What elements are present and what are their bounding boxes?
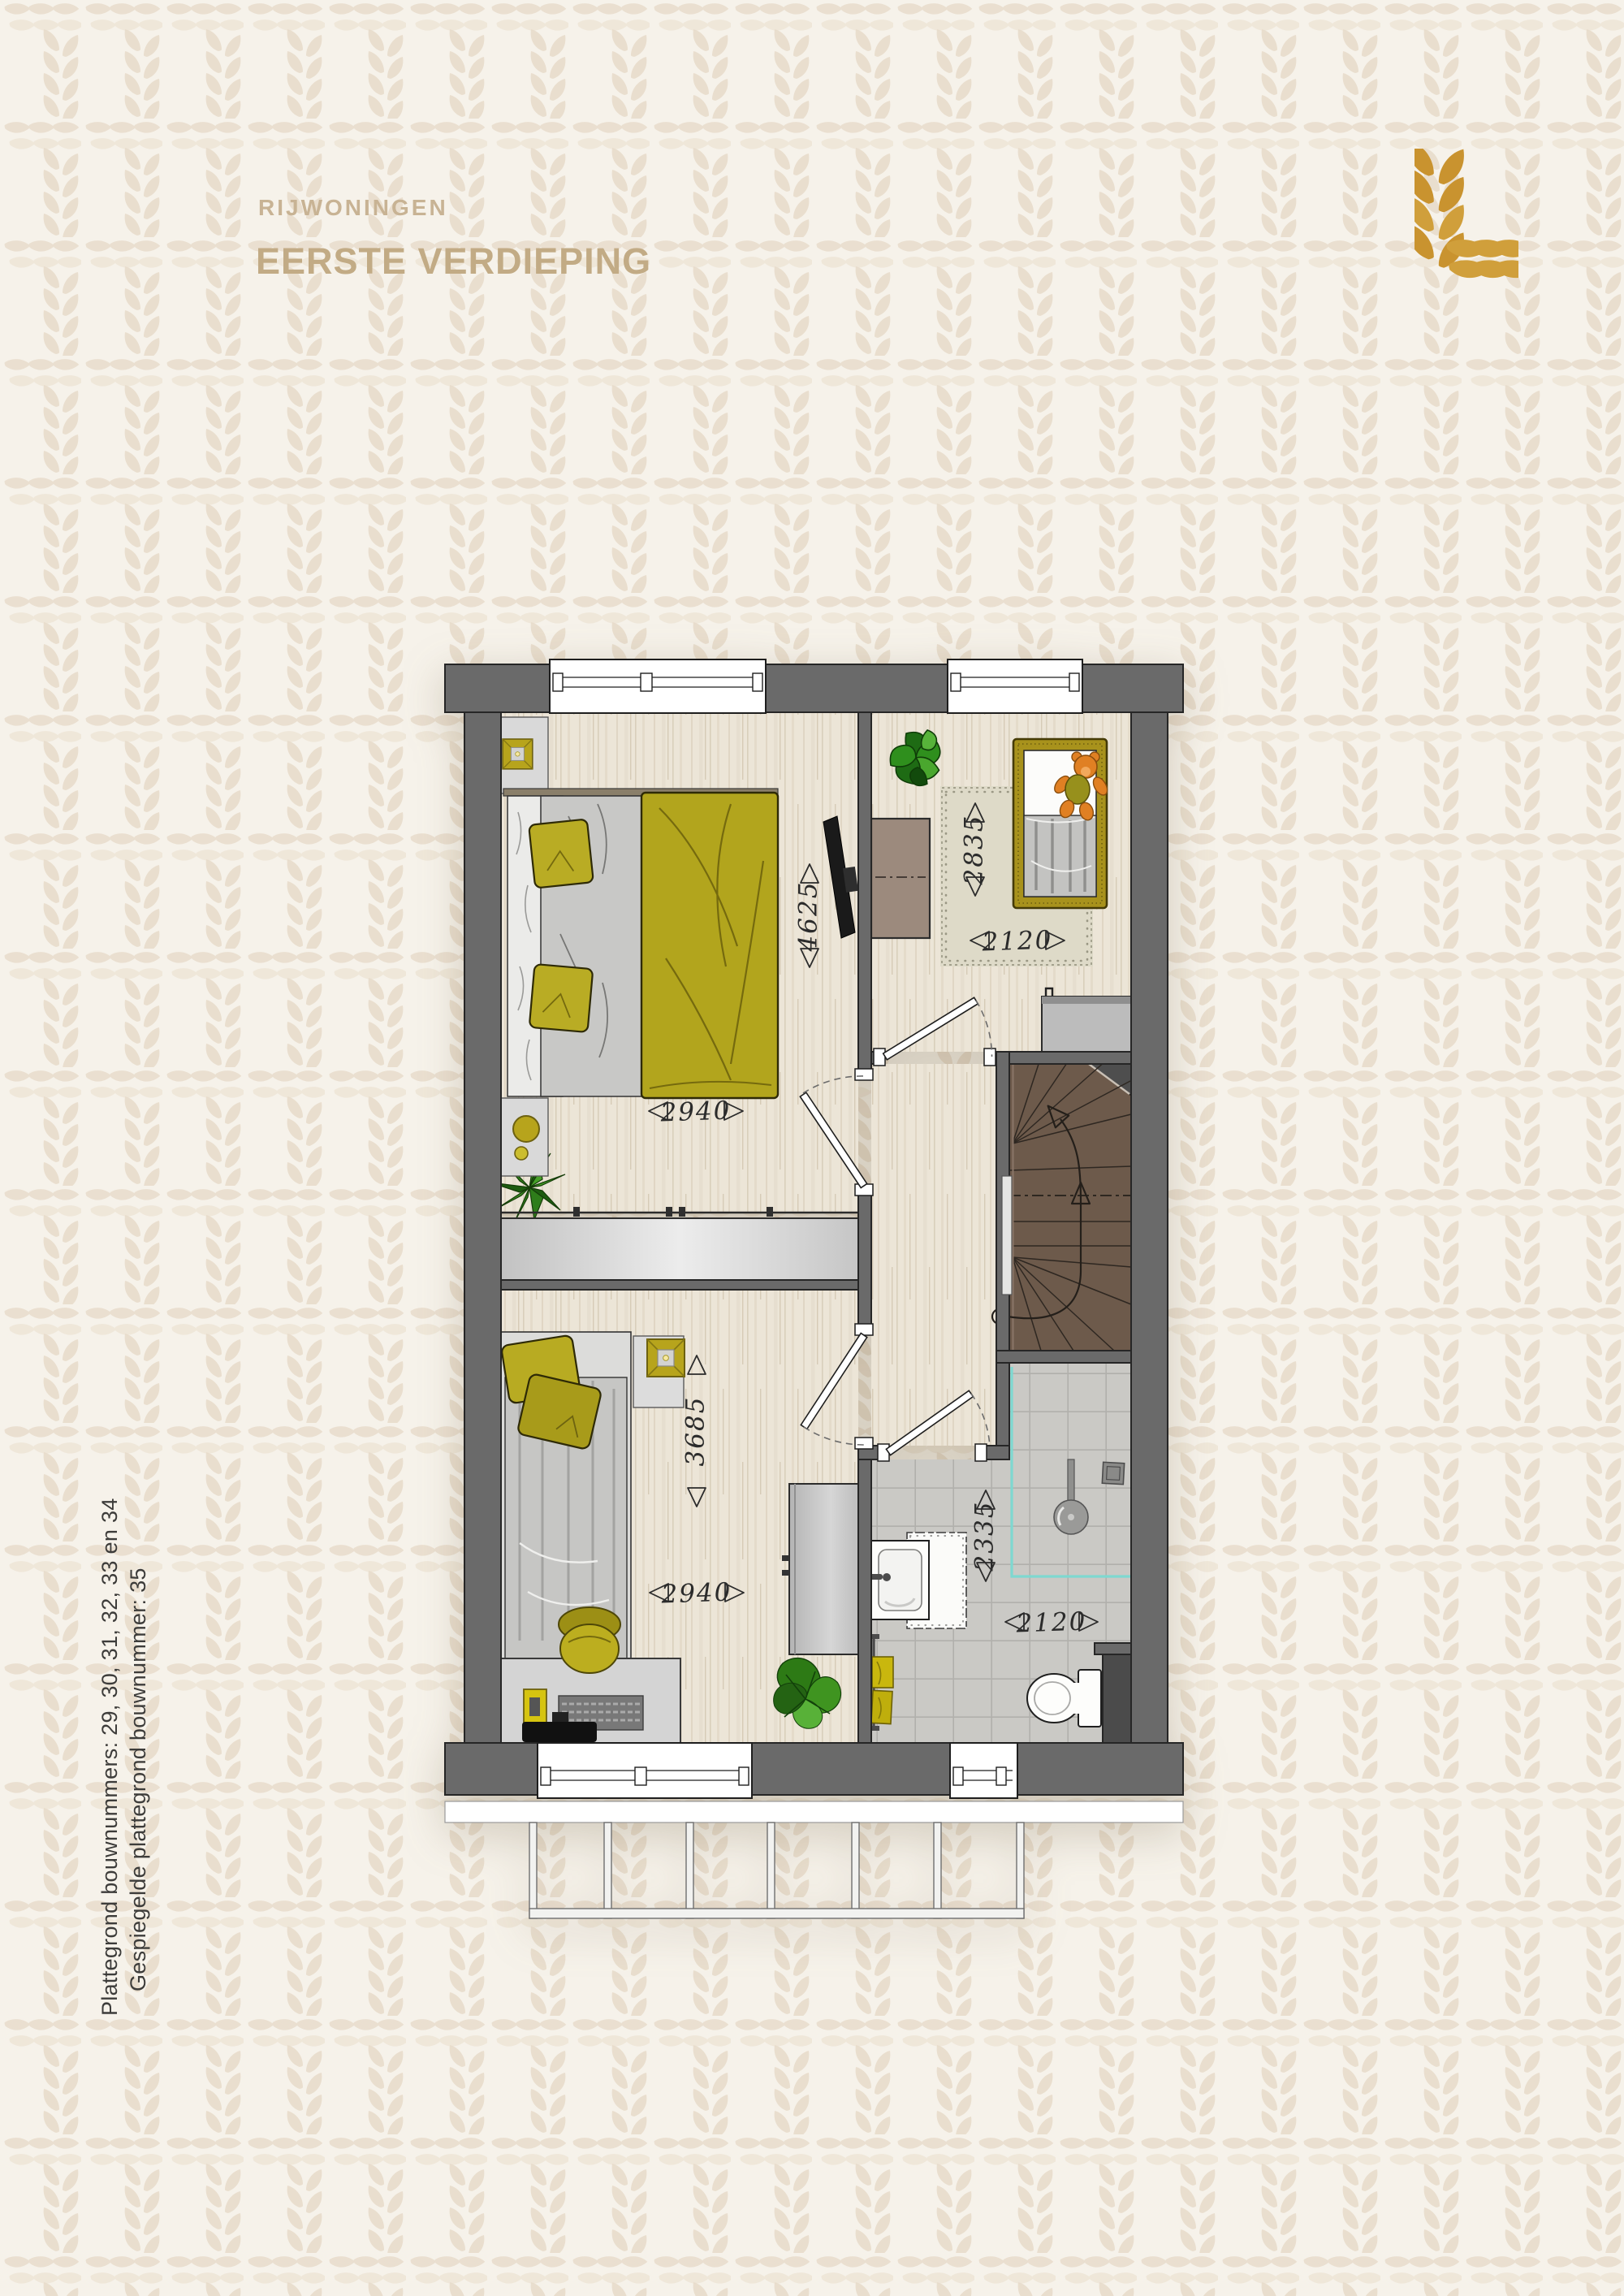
dim-bathroom-depth: 2335: [970, 1501, 1000, 1572]
window: [550, 659, 766, 713]
crib: [1013, 739, 1110, 908]
toilet-partition: [1103, 1654, 1131, 1743]
staircase: [992, 1052, 1131, 1351]
dim-child-depth: 2835: [960, 815, 989, 886]
pillow: [529, 964, 594, 1032]
pillow: [529, 819, 594, 888]
dim-child-width: 2120: [981, 925, 1053, 957]
desk-chair: [559, 1607, 620, 1673]
dim-second-depth: 3685: [681, 1396, 710, 1467]
window: [950, 1743, 1017, 1798]
side-note-line2: Gespiegelde plattegrond bouwnummer: 35: [127, 1567, 149, 1991]
sink: [869, 1541, 929, 1619]
double-bed: [503, 789, 778, 1098]
shower-drain: [1102, 1462, 1124, 1484]
category-label: RIJWONINGEN: [258, 195, 448, 221]
vase: [515, 1147, 528, 1160]
floor-plan: 4625 2940 2835 2120 3685 2940 2335 2120: [437, 643, 1195, 1943]
table-lamp: [647, 1339, 685, 1377]
wardrobe: [871, 819, 930, 938]
stair-balustrade: [1002, 1176, 1012, 1295]
built-in-closet: [501, 1207, 858, 1280]
balcony-railing: [529, 1823, 1024, 1918]
dim-master-width: 2940: [659, 1096, 732, 1127]
side-note-line1: Plattegrond bouwnummers: 29, 30, 31, 32,…: [99, 1498, 121, 2016]
table-lamp: [503, 739, 533, 769]
wheat-logo-icon: [1415, 149, 1518, 285]
window: [538, 1743, 752, 1798]
dim-bathroom-width: 2120: [1015, 1606, 1087, 1638]
toilet: [1027, 1670, 1101, 1727]
window: [948, 659, 1082, 713]
roof-edge: [445, 1801, 1183, 1823]
page-title: EERSTE VERDIEPING: [256, 240, 651, 283]
dim-master-depth: 4625: [794, 881, 823, 953]
vase: [513, 1116, 539, 1142]
towel: [872, 1657, 893, 1688]
towel: [871, 1690, 892, 1723]
landing-floor: [871, 1064, 996, 1446]
tall-cabinet: [782, 1484, 858, 1654]
dim-second-width: 2940: [660, 1577, 732, 1609]
